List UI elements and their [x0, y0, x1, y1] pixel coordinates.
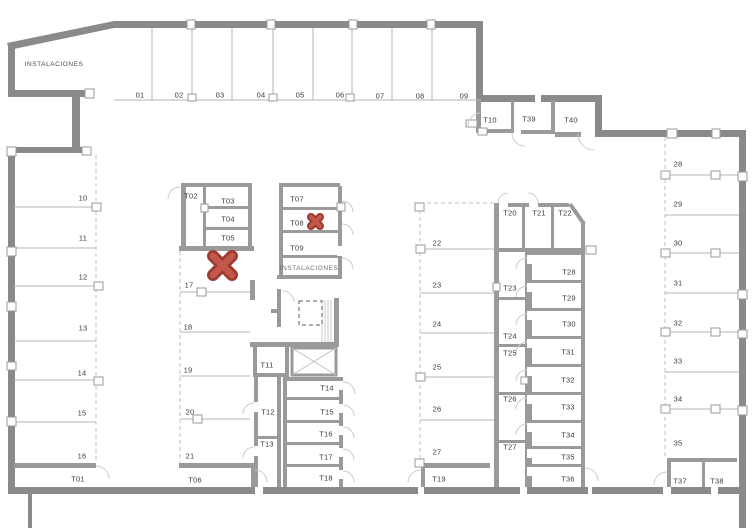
room-t11-label: T11: [261, 361, 274, 369]
space-28-label: 28: [674, 160, 683, 168]
space-22-label: 22: [433, 239, 442, 247]
room-t03-label: T03: [221, 197, 235, 205]
space-21-label: 21: [186, 452, 195, 460]
room-t30-label: T30: [562, 320, 576, 328]
space-32-label: 32: [674, 319, 683, 327]
room-t09-label: T09: [290, 244, 304, 252]
room-t14-label: T14: [320, 384, 334, 392]
room-t21-label: T21: [532, 209, 546, 217]
floorplan-drawing: [0, 0, 756, 528]
space-08-label: 08: [416, 92, 425, 100]
lift-shaft-dashed: [299, 301, 322, 325]
column-markers: [7, 20, 747, 467]
space-15-label: 15: [78, 409, 87, 417]
space-03-label: 03: [216, 91, 225, 99]
space-20-label: 20: [186, 408, 195, 416]
room-t39-label: T39: [522, 115, 536, 123]
room-t28-label: T28: [562, 268, 576, 276]
room-t10-label: T10: [483, 116, 497, 124]
space-06-label: 06: [336, 91, 345, 99]
space-26-label: 26: [433, 405, 442, 413]
space-25-label: 25: [433, 363, 442, 371]
room-t38-label: T38: [710, 477, 724, 485]
space-17-label: 17: [185, 281, 194, 289]
room-t07-label: T07: [290, 195, 304, 203]
room-t31-label: T31: [561, 348, 575, 356]
space-14-label: 14: [78, 369, 87, 377]
space-33-label: 33: [674, 357, 683, 365]
sold-cross-large: [213, 256, 232, 275]
space-01-label: 01: [136, 91, 145, 99]
room-t19-label: T19: [432, 475, 446, 483]
room-t01-label: T01: [71, 475, 85, 483]
space-02-label: 02: [175, 91, 184, 99]
room-t12-label: T12: [261, 408, 275, 416]
bay-divider-lines: [14, 28, 739, 422]
room-t04-label: T04: [221, 215, 235, 223]
room-t32-label: T32: [561, 376, 575, 384]
room-t36-label: T36: [561, 475, 575, 483]
room-t18-label: T18: [319, 474, 333, 482]
room-t20-label: T20: [503, 209, 517, 217]
room-t13-label: T13: [260, 440, 274, 448]
room-t08-label: T08: [290, 219, 304, 227]
room-t17-label: T17: [319, 453, 333, 461]
room-t35-label: T35: [561, 453, 575, 461]
t22-diagonal-wall: [570, 204, 584, 224]
room-t02-label: T02: [184, 192, 198, 200]
room-t29-label: T29: [562, 294, 576, 302]
space-24-label: 24: [433, 320, 442, 328]
room-t24-label: T24: [503, 332, 517, 340]
space-31-label: 31: [674, 279, 683, 287]
instalaciones-label-nw: INSTALACIONES: [25, 62, 84, 69]
room-t23-label: T23: [503, 284, 517, 292]
space-04-label: 04: [257, 91, 266, 99]
room-t15-label: T15: [320, 408, 334, 416]
stairwell: [292, 300, 336, 375]
room-t06-label: T06: [188, 476, 202, 484]
room-t05-label: T05: [221, 234, 235, 242]
interior-walls: [14, 100, 737, 487]
space-29-label: 29: [674, 200, 683, 208]
room-t33-label: T33: [561, 403, 575, 411]
room-t37-label: T37: [673, 477, 687, 485]
space-27-label: 27: [433, 448, 442, 456]
room-t27-label: T27: [503, 443, 517, 451]
room-t26-label: T26: [503, 395, 517, 403]
space-35-label: 35: [674, 439, 683, 447]
room-t34-label: T34: [561, 431, 575, 439]
space-34-label: 34: [674, 395, 683, 403]
instalaciones-label-core: INSTALACIONES: [280, 266, 339, 273]
space-09-label: 09: [460, 92, 469, 100]
room-t25-label: T25: [503, 349, 517, 357]
space-30-label: 30: [674, 239, 683, 247]
space-16-label: 16: [78, 452, 87, 460]
space-19-label: 19: [184, 366, 193, 374]
room-t40-label: T40: [564, 116, 578, 124]
room-t16-label: T16: [319, 430, 333, 438]
space-07-label: 07: [376, 92, 385, 100]
space-18-label: 18: [184, 323, 193, 331]
space-05-label: 05: [296, 91, 305, 99]
floor-plan: INSTALACIONES 01 02 03 04 05 06 07 08 09…: [0, 0, 756, 528]
space-13-label: 13: [79, 324, 88, 332]
space-11-label: 11: [79, 234, 87, 242]
room-t22-label: T22: [558, 209, 572, 217]
sold-cross-small: [311, 217, 320, 226]
space-10-label: 10: [79, 194, 88, 202]
space-12-label: 12: [79, 273, 88, 281]
space-23-label: 23: [433, 281, 442, 289]
